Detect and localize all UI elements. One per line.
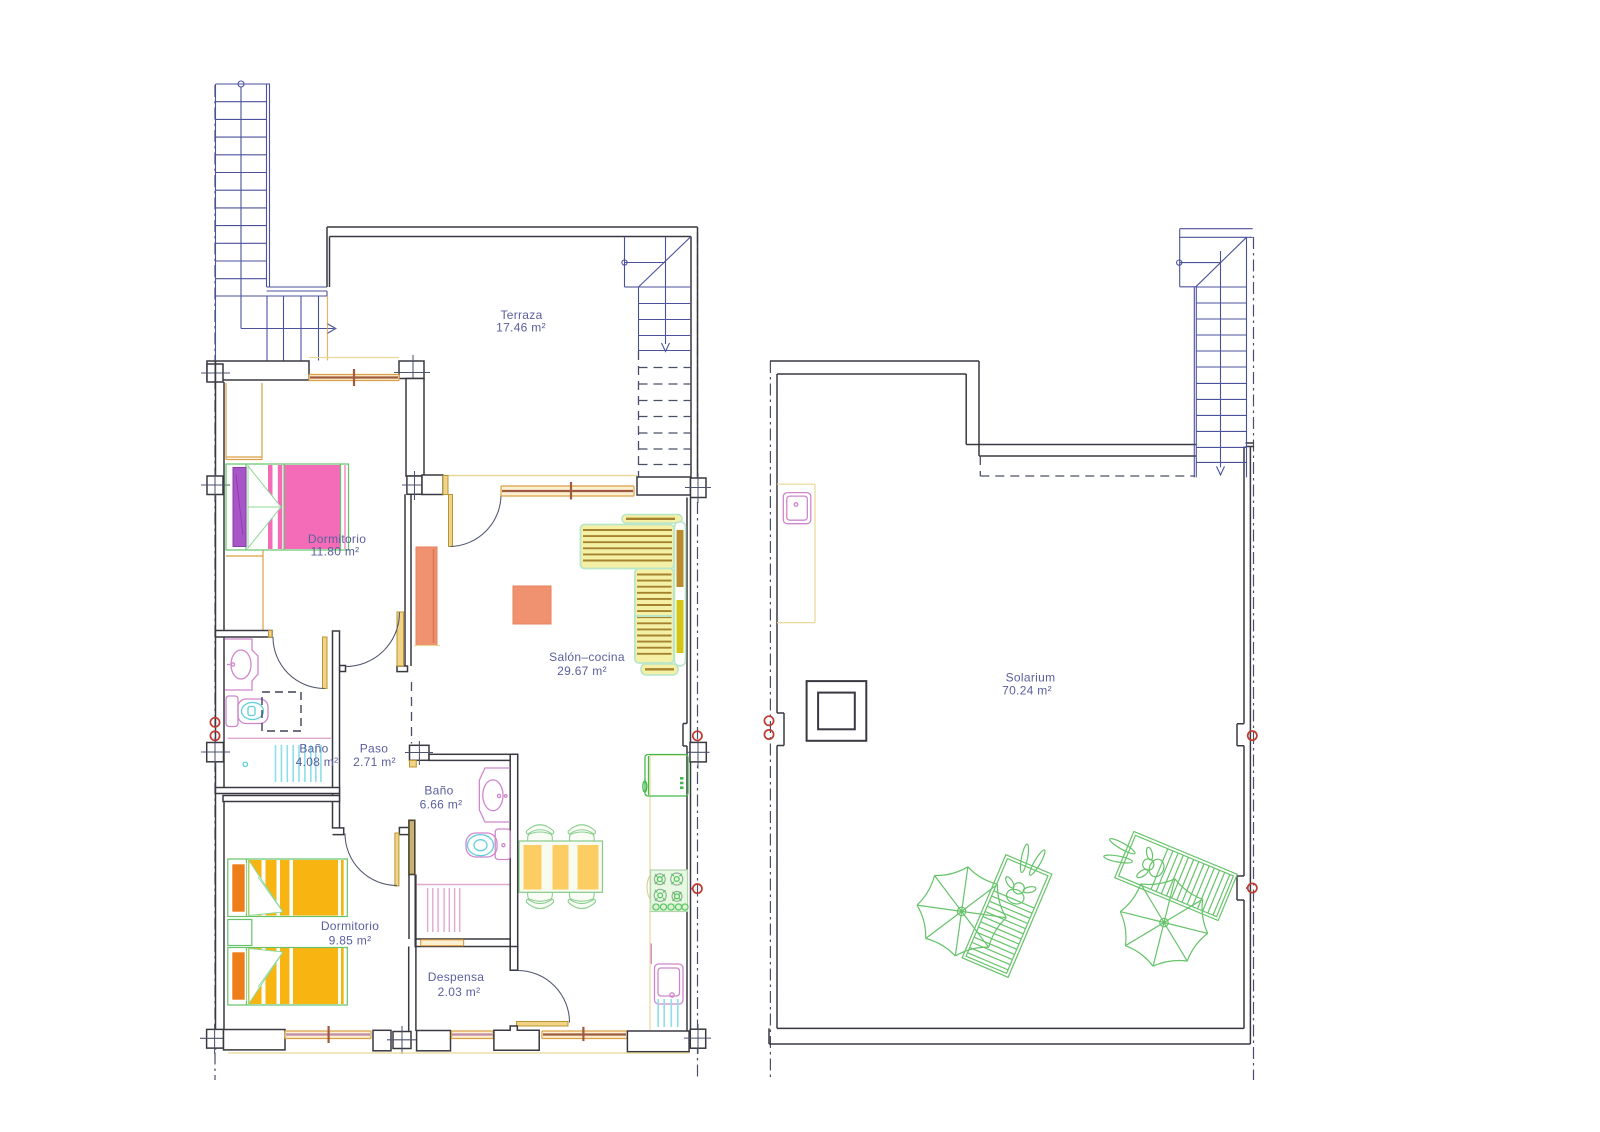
svg-text:Paso: Paso — [360, 742, 389, 756]
svg-text:2.71 m²: 2.71 m² — [353, 755, 396, 769]
svg-text:Baño: Baño — [299, 742, 328, 756]
svg-text:Dormitorio: Dormitorio — [321, 919, 379, 933]
svg-text:2.03 m²: 2.03 m² — [438, 985, 481, 999]
svg-text:17.46 m²: 17.46 m² — [496, 321, 546, 335]
svg-text:4.08 m²: 4.08 m² — [296, 755, 339, 769]
svg-text:Solarium: Solarium — [1006, 671, 1056, 685]
svg-text:29.67 m²: 29.67 m² — [557, 664, 607, 678]
svg-text:Salón–cocina: Salón–cocina — [549, 650, 625, 664]
svg-text:Baño: Baño — [424, 784, 453, 798]
svg-text:6.66 m²: 6.66 m² — [420, 798, 463, 812]
svg-text:70.24 m²: 70.24 m² — [1002, 684, 1052, 698]
svg-text:11.80 m²: 11.80 m² — [311, 545, 360, 559]
svg-text:9.85 m²: 9.85 m² — [329, 934, 372, 948]
svg-text:Despensa: Despensa — [428, 970, 484, 984]
